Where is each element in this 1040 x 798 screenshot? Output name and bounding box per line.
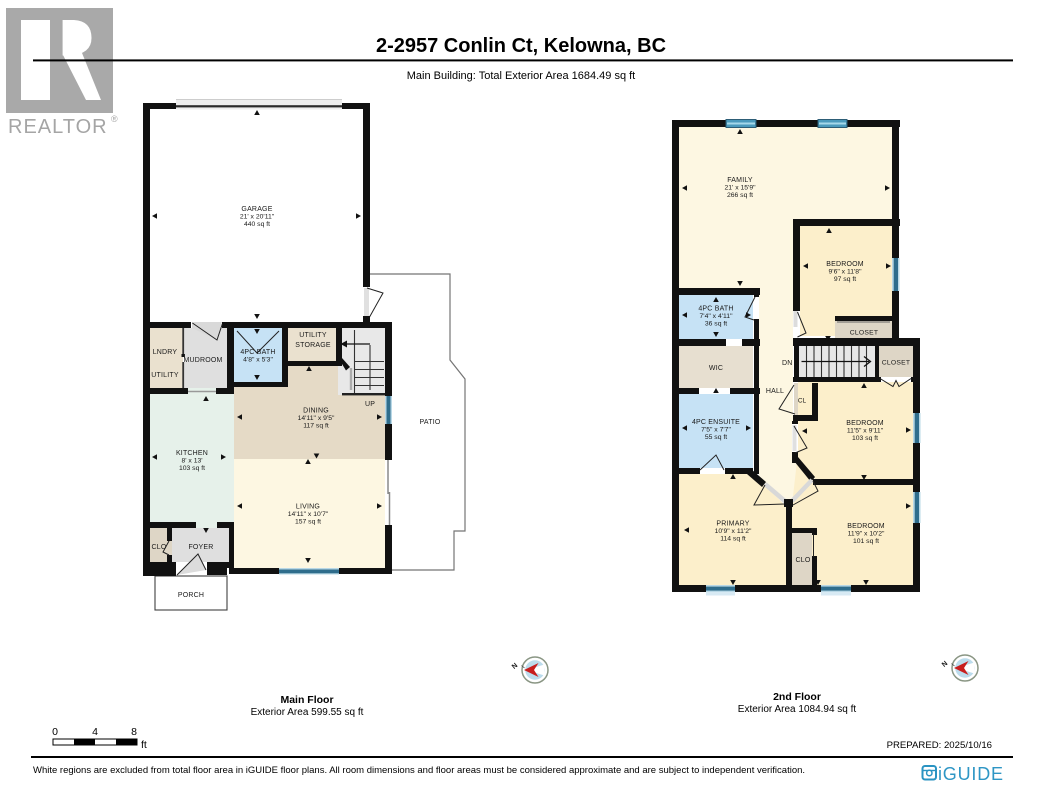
svg-text:iGUIDE: iGUIDE [938,764,1004,784]
svg-text:CLOSET: CLOSET [882,360,910,367]
svg-text:FAMILY: FAMILY [727,177,753,184]
svg-text:GARAGE: GARAGE [241,206,272,213]
svg-text:Main Floor: Main Floor [280,694,333,706]
svg-text:266 sq ft: 266 sq ft [727,192,753,199]
svg-text:PRIMARY: PRIMARY [716,521,749,528]
svg-text:PREPARED: 2025/10/16: PREPARED: 2025/10/16 [887,740,992,751]
svg-text:97 sq ft: 97 sq ft [834,276,856,283]
svg-text:14'11" x 10'7": 14'11" x 10'7" [288,511,329,518]
svg-text:4PC ENSUITE: 4PC ENSUITE [692,419,740,426]
svg-text:21' x 20'11": 21' x 20'11" [240,213,275,220]
svg-text:BEDROOM: BEDROOM [847,523,885,530]
svg-text:PORCH: PORCH [178,592,204,599]
svg-text:CLO: CLO [796,557,811,564]
svg-text:8' x 13': 8' x 13' [181,457,202,464]
svg-text:101 sq ft: 101 sq ft [853,538,879,545]
svg-text:11'9" x 10'2": 11'9" x 10'2" [848,530,885,537]
svg-text:LNDRY: LNDRY [153,349,178,356]
svg-text:Exterior Area 1084.94 sq ft: Exterior Area 1084.94 sq ft [738,704,857,715]
svg-text:10'9" x 11'2": 10'9" x 11'2" [715,528,752,535]
svg-text:117 sq ft: 117 sq ft [303,422,329,429]
svg-text:WIC: WIC [709,365,723,372]
svg-text:CLO: CLO [152,544,167,551]
svg-text:PATIO: PATIO [420,419,441,426]
svg-text:4PC BATH: 4PC BATH [698,306,733,313]
svg-text:Main Building: Total Exterior: Main Building: Total Exterior Area 1684.… [407,70,636,82]
svg-text:440 sq ft: 440 sq ft [244,221,270,228]
svg-text:White regions are excluded fro: White regions are excluded from total fl… [33,765,805,776]
svg-text:HALL: HALL [766,388,784,395]
svg-text:103 sq ft: 103 sq ft [179,465,205,472]
svg-text:Exterior Area 599.55 sq ft: Exterior Area 599.55 sq ft [251,707,364,718]
svg-text:8: 8 [131,726,137,738]
svg-text:4: 4 [92,726,98,738]
svg-text:BEDROOM: BEDROOM [826,261,864,268]
svg-text:FOYER: FOYER [188,544,213,551]
svg-text:2nd Floor: 2nd Floor [773,691,821,703]
svg-text:7'4" x 4'11": 7'4" x 4'11" [700,313,734,320]
svg-text:REALTOR: REALTOR [8,116,108,138]
svg-text:14'11" x 9'5": 14'11" x 9'5" [298,415,335,422]
svg-text:®: ® [111,114,118,124]
svg-text:BEDROOM: BEDROOM [846,420,884,427]
svg-text:CLOSET: CLOSET [850,330,878,337]
svg-text:55 sq ft: 55 sq ft [705,434,727,441]
svg-text:114 sq ft: 114 sq ft [720,536,746,543]
svg-text:MUDROOM: MUDROOM [183,357,222,364]
svg-text:157 sq ft: 157 sq ft [295,518,321,525]
svg-text:4'8" x 5'3": 4'8" x 5'3" [243,357,273,364]
svg-text:KITCHEN: KITCHEN [176,450,208,457]
svg-text:LIVING: LIVING [296,504,320,511]
svg-text:21' x 15'9": 21' x 15'9" [724,184,756,191]
svg-text:7'5" x 7'7": 7'5" x 7'7" [701,426,731,433]
svg-text:0: 0 [52,726,58,738]
svg-text:103 sq ft: 103 sq ft [852,435,878,442]
svg-text:DINING: DINING [303,408,329,415]
svg-text:36 sq ft: 36 sq ft [705,320,727,327]
svg-text:4PC BATH: 4PC BATH [240,349,275,356]
svg-text:2-2957 Conlin Ct, Kelowna, BC: 2-2957 Conlin Ct, Kelowna, BC [376,35,666,57]
svg-text:UTILITY: UTILITY [299,332,327,339]
svg-text:UP: UP [365,401,375,408]
svg-text:11'5" x 9'11": 11'5" x 9'11" [847,428,884,435]
svg-text:9'6" x 11'8": 9'6" x 11'8" [829,268,863,275]
svg-text:UTILITY: UTILITY [151,372,179,379]
svg-text:CL: CL [798,398,807,405]
svg-text:ft: ft [141,739,147,751]
svg-text:STORAGE: STORAGE [295,342,331,349]
svg-text:DN: DN [782,360,793,367]
